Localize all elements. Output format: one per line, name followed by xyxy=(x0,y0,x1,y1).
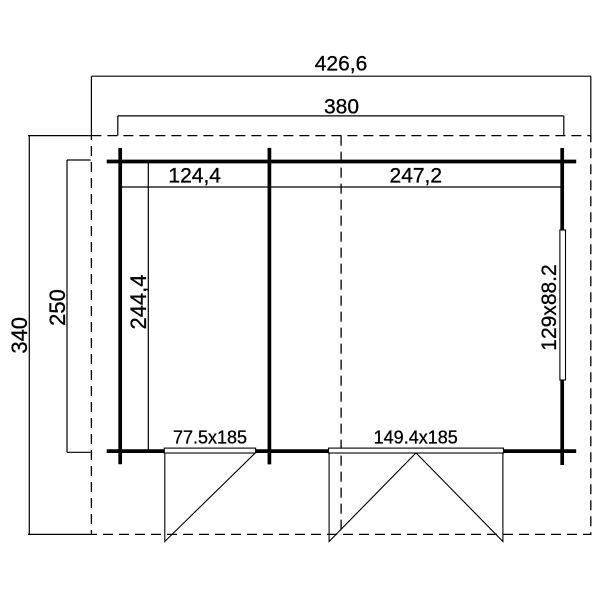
svg-text:77.5x185: 77.5x185 xyxy=(173,428,247,448)
svg-text:250: 250 xyxy=(45,289,70,326)
svg-text:129x88.2: 129x88.2 xyxy=(538,264,561,350)
svg-text:426,6: 426,6 xyxy=(315,53,368,76)
svg-text:244,4: 244,4 xyxy=(126,274,151,329)
svg-text:149.4x185: 149.4x185 xyxy=(374,427,458,447)
svg-text:247,2: 247,2 xyxy=(390,165,443,188)
svg-text:124,4: 124,4 xyxy=(168,165,221,188)
svg-text:340: 340 xyxy=(7,317,32,354)
svg-text:380: 380 xyxy=(324,96,359,119)
